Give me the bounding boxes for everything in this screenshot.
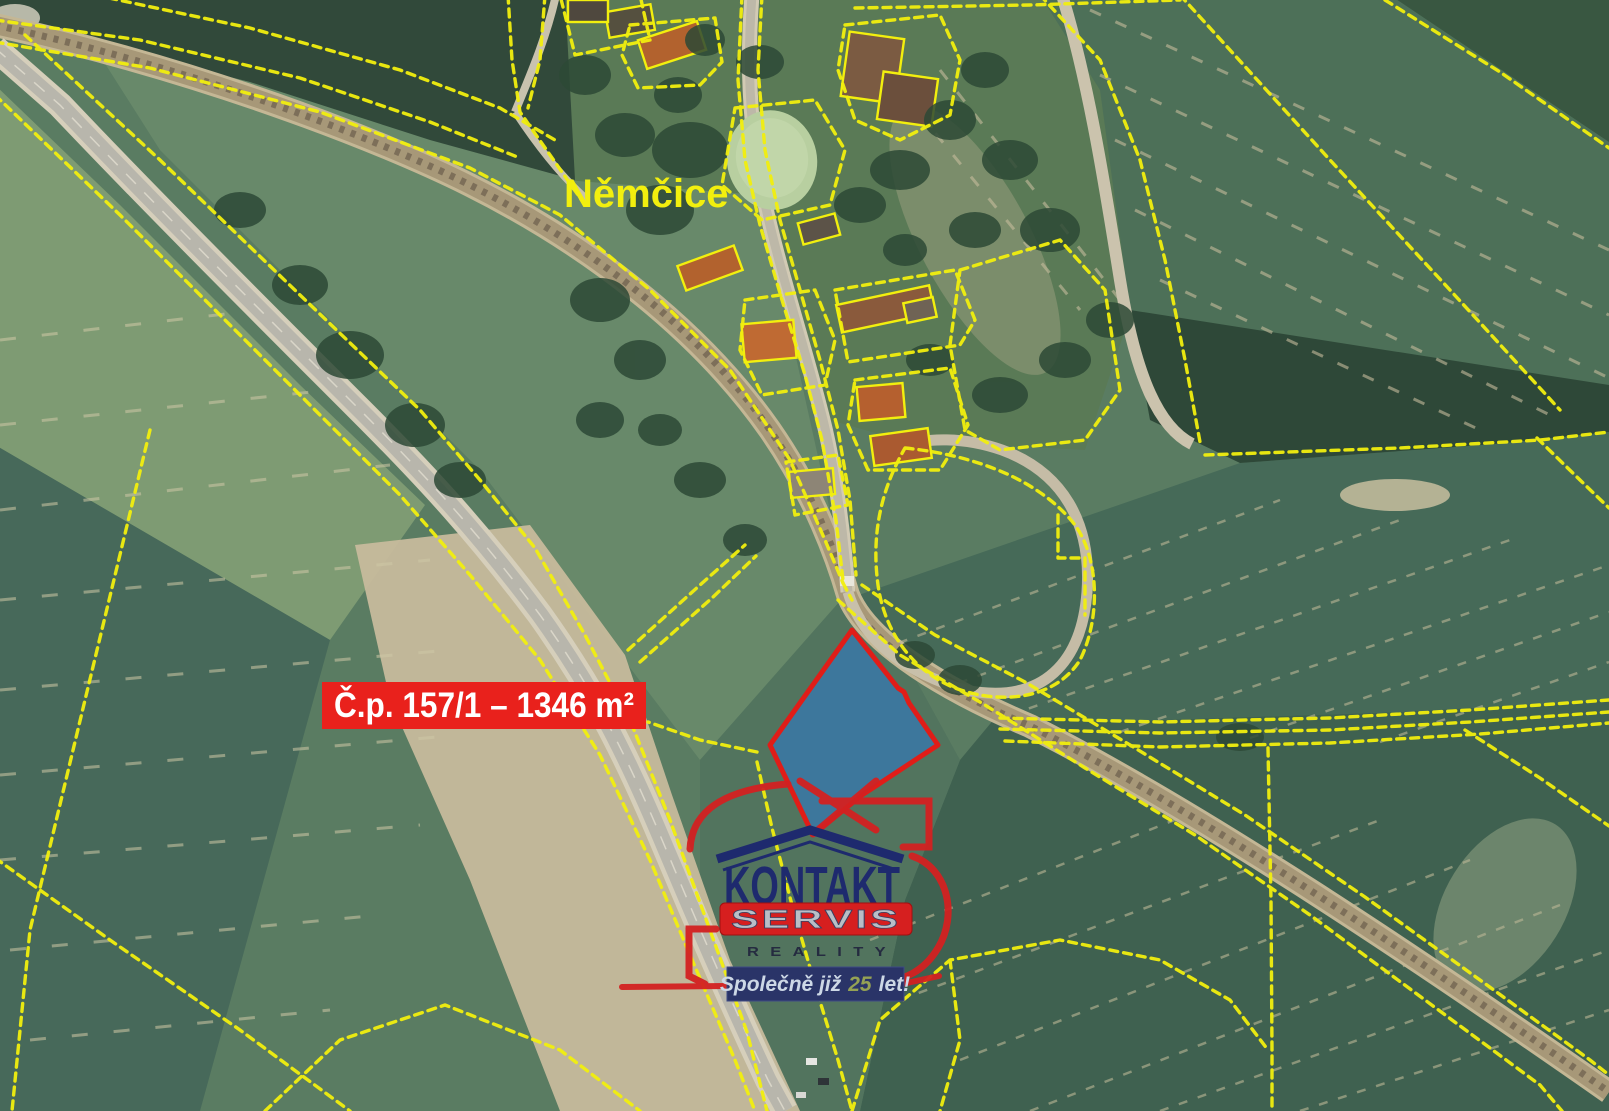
banner-slogan-number: 25 xyxy=(847,973,872,996)
car xyxy=(796,1092,806,1098)
aerial-map: Němčice Č.p. 157/1 – 1346 m² KONTAKT SER… xyxy=(0,0,1609,1111)
building xyxy=(568,0,608,22)
banner-slogan-pre: Společně již xyxy=(720,973,842,996)
car xyxy=(806,1058,817,1065)
brand-servis-text: SERVIS xyxy=(731,904,901,934)
listing-map-screenshot: Němčice Č.p. 157/1 – 1346 m² KONTAKT SER… xyxy=(0,0,1609,1111)
building xyxy=(870,428,932,466)
car xyxy=(818,1078,829,1085)
logo-underline-left xyxy=(622,986,727,987)
building xyxy=(857,383,906,421)
banner-slogan-post: let! xyxy=(879,973,911,996)
brand-reality-text: REALITY xyxy=(747,944,897,959)
anniversary-banner: Společně již25let! xyxy=(720,967,910,1001)
parcel-info-label: Č.p. 157/1 – 1346 m² xyxy=(322,682,646,729)
place-label: Němčice xyxy=(564,172,729,216)
parcel-label-text: Č.p. 157/1 – 1346 m² xyxy=(334,685,634,725)
banner-text: Společně již25let! xyxy=(720,973,910,996)
